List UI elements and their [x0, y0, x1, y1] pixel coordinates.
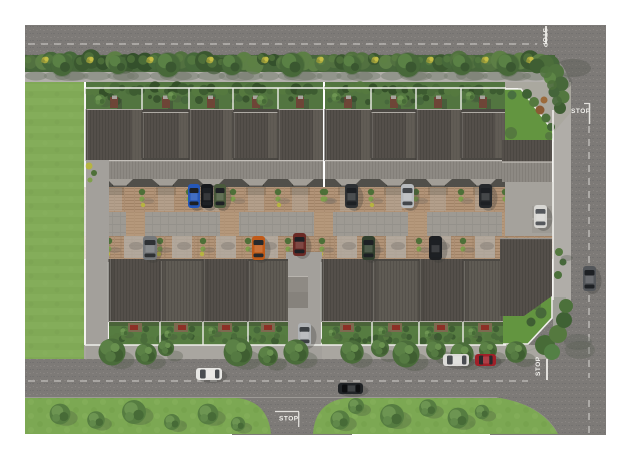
- svg-text:STOP: STOP: [279, 416, 299, 423]
- svg-text:STOP: STOP: [571, 108, 591, 115]
- svg-text:STOP: STOP: [541, 28, 548, 48]
- svg-text:STOP: STOP: [535, 356, 542, 376]
